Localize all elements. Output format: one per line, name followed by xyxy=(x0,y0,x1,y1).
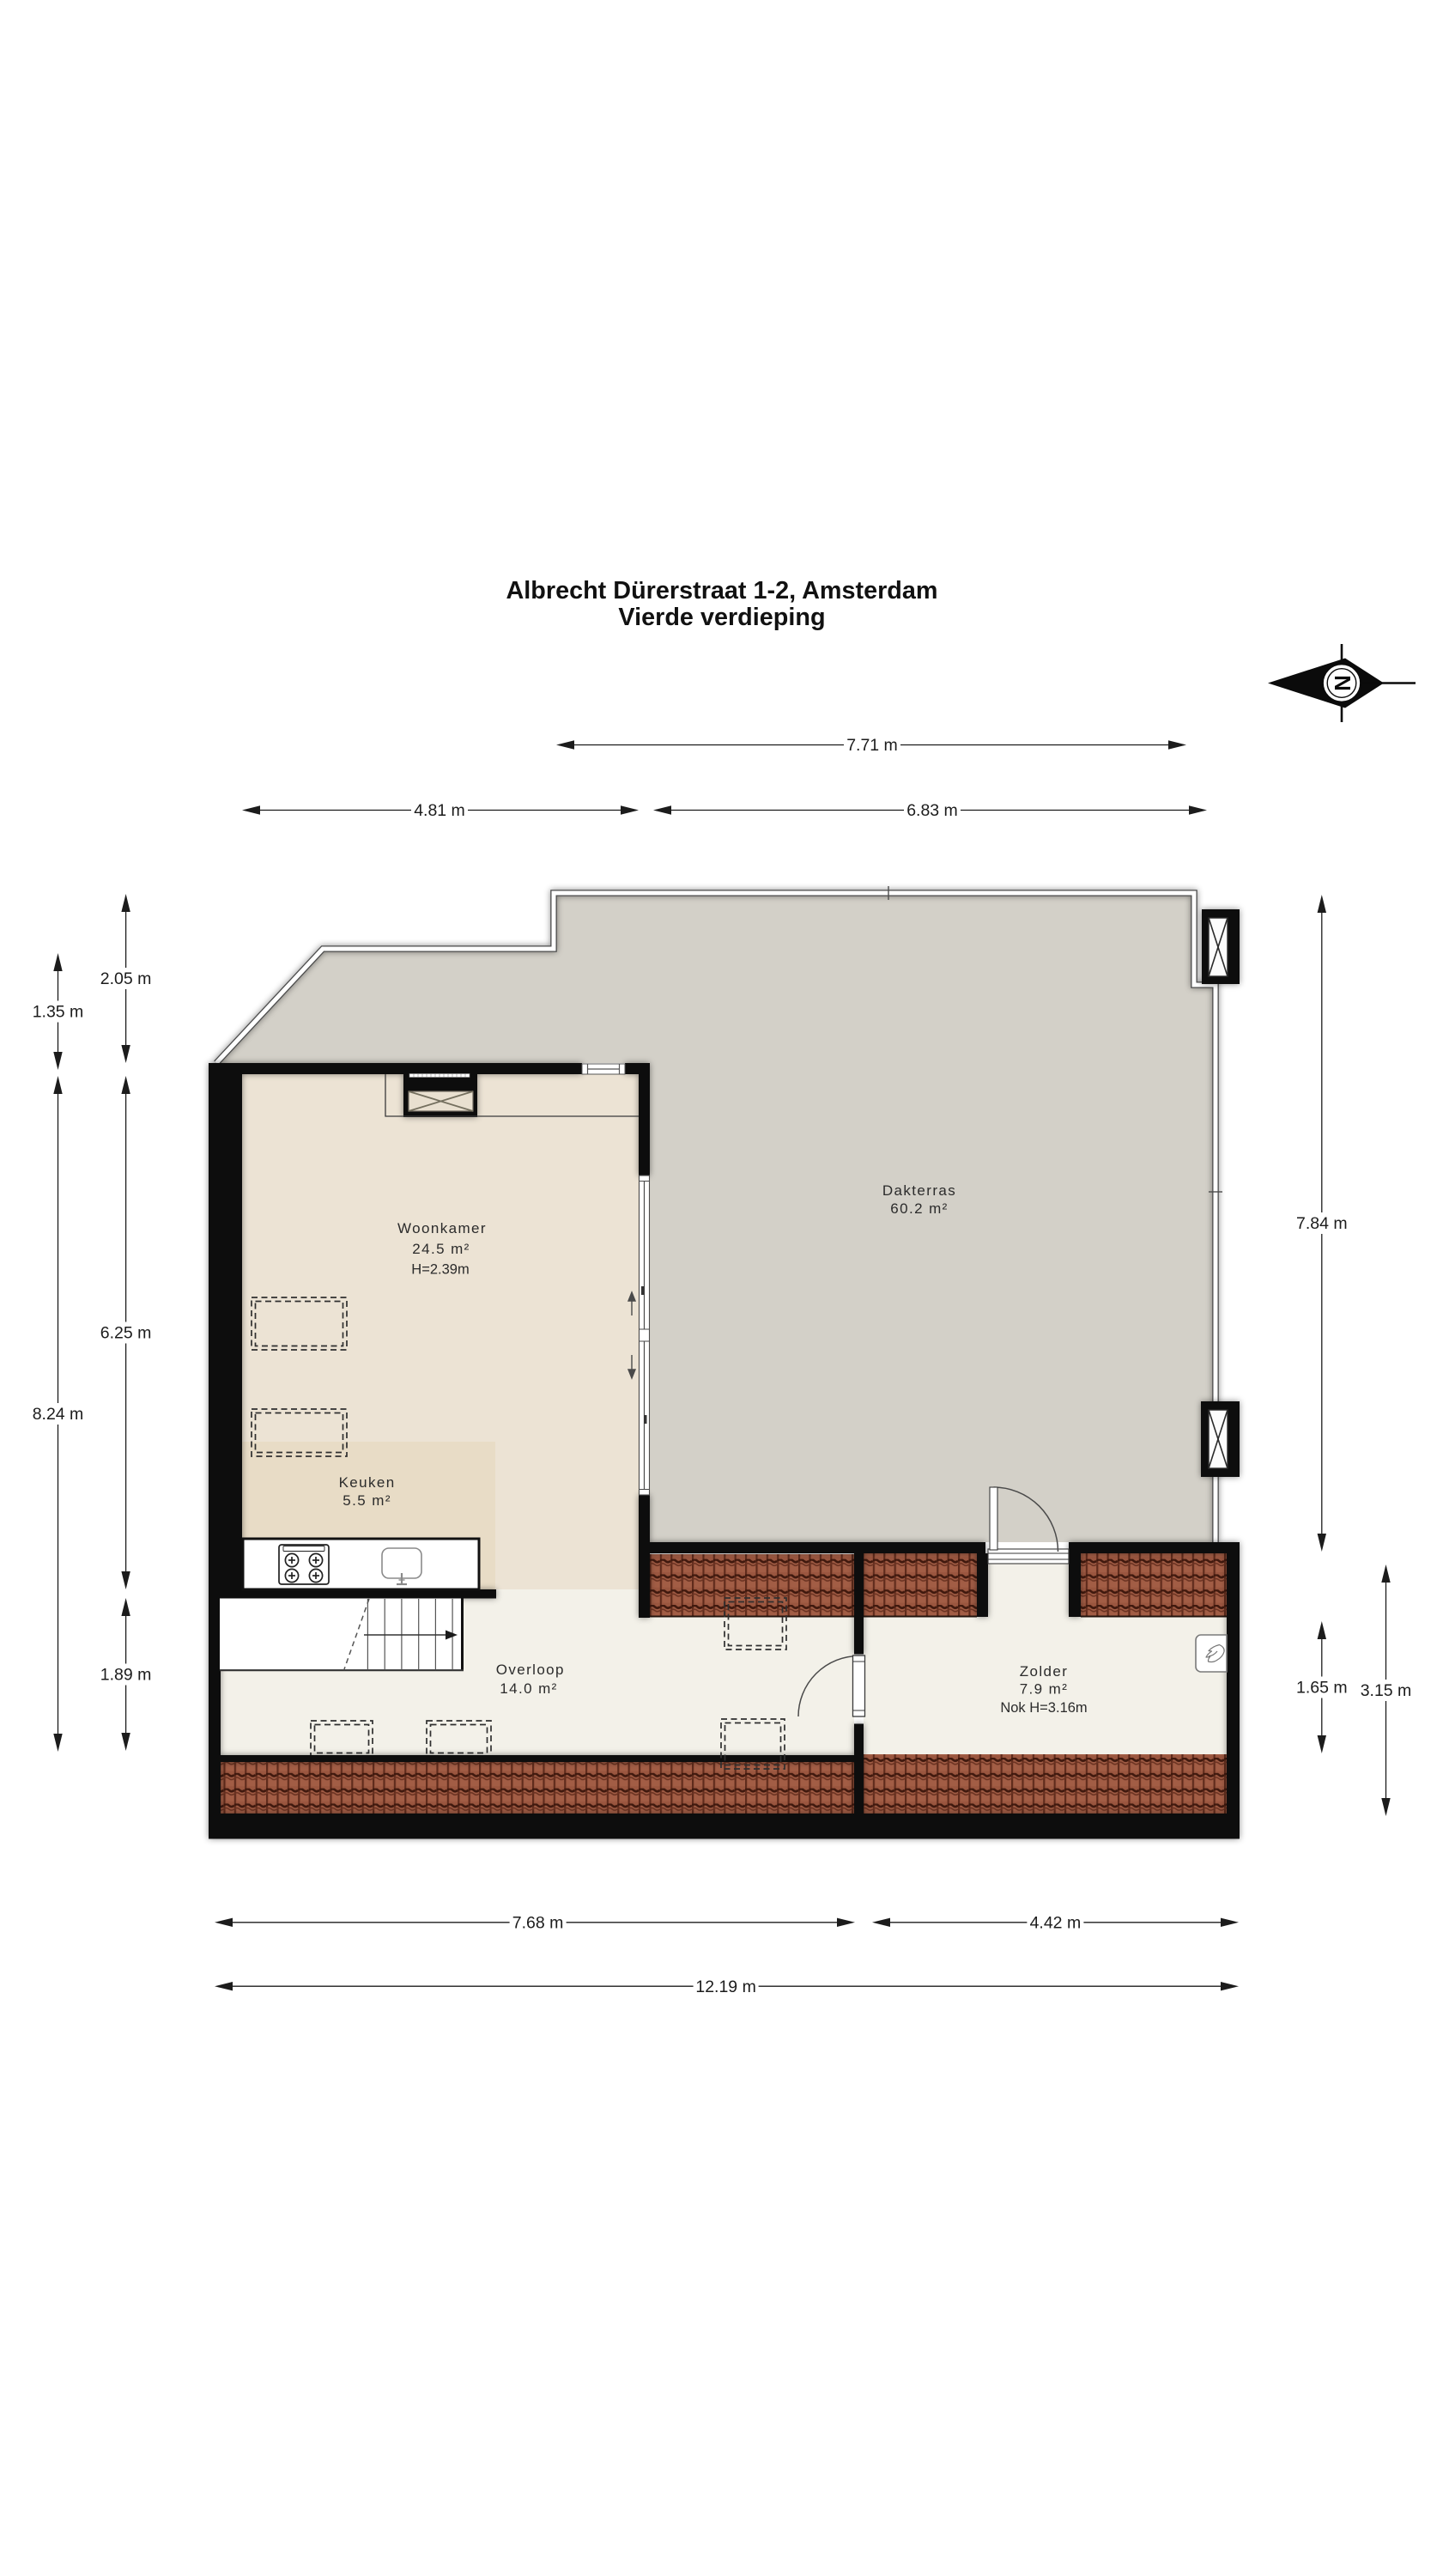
svg-text:Overloop: Overloop xyxy=(496,1662,565,1678)
svg-text:Keuken: Keuken xyxy=(339,1474,396,1491)
svg-text:Albrecht Dürerstraat 1-2, Amst: Albrecht Dürerstraat 1-2, Amsterdam xyxy=(506,577,937,605)
svg-text:14.0 m²: 14.0 m² xyxy=(500,1680,557,1697)
svg-text:6.25 m: 6.25 m xyxy=(100,1324,152,1343)
svg-text:60.2 m²: 60.2 m² xyxy=(890,1200,948,1217)
svg-text:12.19 m: 12.19 m xyxy=(695,1978,755,1996)
svg-text:Vierde verdieping: Vierde verdieping xyxy=(618,604,825,631)
svg-text:7.9 m²: 7.9 m² xyxy=(1020,1681,1069,1698)
svg-text:Zolder: Zolder xyxy=(1020,1663,1069,1680)
svg-text:H=2.39m: H=2.39m xyxy=(411,1262,469,1278)
svg-text:5.5 m²: 5.5 m² xyxy=(343,1492,391,1509)
svg-text:Nok H=3.16m: Nok H=3.16m xyxy=(1000,1700,1087,1716)
svg-text:2.05 m: 2.05 m xyxy=(100,969,152,988)
svg-text:4.42 m: 4.42 m xyxy=(1030,1914,1082,1933)
svg-text:7.84 m: 7.84 m xyxy=(1296,1214,1348,1233)
svg-text:1.89 m: 1.89 m xyxy=(100,1666,152,1685)
svg-text:8.24 m: 8.24 m xyxy=(33,1405,84,1424)
svg-text:24.5 m²: 24.5 m² xyxy=(412,1241,470,1257)
svg-text:4.81 m: 4.81 m xyxy=(414,801,465,820)
svg-text:7.68 m: 7.68 m xyxy=(512,1914,564,1933)
svg-text:1.35 m: 1.35 m xyxy=(33,1003,84,1022)
svg-text:N: N xyxy=(1330,675,1355,691)
svg-text:Dakterras: Dakterras xyxy=(882,1182,956,1199)
svg-text:Woonkamer: Woonkamer xyxy=(397,1220,487,1236)
svg-text:6.83 m: 6.83 m xyxy=(906,801,958,820)
svg-text:7.71 m: 7.71 m xyxy=(846,736,898,755)
svg-text:3.15 m: 3.15 m xyxy=(1361,1681,1412,1700)
svg-text:1.65 m: 1.65 m xyxy=(1296,1679,1348,1698)
